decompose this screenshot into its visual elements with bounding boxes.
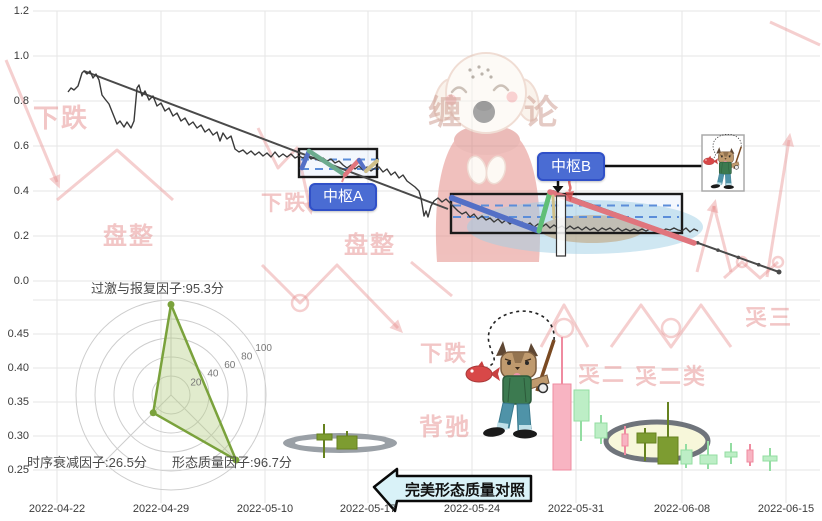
watermark-zigzag — [541, 305, 588, 347]
watermark-zigzag — [411, 262, 452, 296]
radar-tick-label: 80 — [241, 351, 253, 362]
y-axis-label: 0.25 — [0, 464, 29, 476]
chart-svg: 20406080100 — [0, 0, 822, 521]
pivot-a-label[interactable]: 中枢A — [309, 183, 377, 211]
trendline-marker — [777, 270, 782, 275]
chan-analysis-chart: 20406080100 — [0, 0, 822, 521]
watermark-text: 盘整 — [344, 225, 396, 260]
brand-char-right: 论 — [524, 85, 558, 134]
y-axis-label: 0.40 — [0, 362, 29, 374]
price-chart-layer — [68, 71, 782, 275]
trendline-marker — [737, 256, 741, 260]
watermark-text: 三买 — [743, 300, 791, 332]
candle-body — [763, 456, 777, 461]
y-axis-label: 0.6 — [0, 140, 29, 152]
y-axis-label: 1.2 — [0, 5, 29, 17]
radar-factor-label: 形态质量因子:96.7分 — [172, 452, 292, 471]
watermark-shapes-layer — [6, 22, 820, 347]
radar-tick-label: 60 — [224, 360, 236, 371]
fisherman-cat-illustration — [466, 311, 554, 438]
x-axis-label: 2022-04-22 — [29, 503, 85, 515]
x-axis-label: 2022-04-29 — [133, 503, 189, 515]
candle-body — [595, 423, 607, 438]
radar-vertex-dot — [150, 409, 157, 416]
trendline-marker — [757, 263, 761, 267]
radar-tick-label: 100 — [255, 343, 272, 354]
radar-tick-label: 20 — [190, 377, 202, 388]
pivot-b-label[interactable]: 中枢B — [537, 152, 605, 181]
x-axis-label: 2022-05-10 — [237, 503, 293, 515]
candle-body — [700, 455, 717, 464]
candle-body — [622, 434, 628, 446]
y-axis-label: 0.8 — [0, 95, 29, 107]
mini-picture-layer — [702, 134, 744, 191]
watermark-text: 盘整 — [103, 216, 155, 251]
x-axis-label: 2022-05-17 — [340, 503, 396, 515]
callout-text[interactable]: 完美形态质量对照 — [399, 479, 531, 500]
segment-endpoint-dot — [449, 195, 455, 201]
watermark-zigzag — [611, 305, 731, 347]
y-axis-label: 0.35 — [0, 396, 29, 408]
fishing-reel — [539, 384, 548, 393]
watermark-text: 下跌 — [33, 98, 89, 135]
y-axis-label: 1.0 — [0, 50, 29, 62]
watermark-zigzag — [262, 265, 398, 328]
candle-body — [658, 437, 678, 464]
arrowhead — [782, 133, 794, 147]
watermark-zigzag — [770, 22, 820, 45]
gray-ellipse-highlight — [606, 422, 708, 460]
candle-body — [681, 450, 692, 464]
watermark-text: 类二买 — [633, 359, 705, 391]
y-axis-label: 0.45 — [0, 328, 29, 340]
watermark-text: 背驰 — [419, 407, 471, 442]
radar-factor-label: 时序衰减因子:26.5分 — [27, 452, 147, 471]
candle-body — [553, 384, 571, 470]
chan-stroke-segment — [553, 196, 554, 218]
radar-tick-label: 40 — [207, 369, 219, 380]
x-axis-label: 2022-05-31 — [548, 503, 604, 515]
y-axis-label: 0.2 — [0, 230, 29, 242]
watermark-zigzag — [57, 150, 173, 200]
watermark-text: 下跌 — [420, 336, 468, 368]
y-axis-label: 0.4 — [0, 185, 29, 197]
y-axis-label: 0.0 — [0, 275, 29, 287]
candle-body — [637, 433, 656, 443]
trendline-marker — [716, 248, 720, 252]
radar-factor-label: 过激与报复因子:95.3分 — [91, 278, 224, 297]
candle-body — [317, 434, 332, 440]
x-axis-label: 2022-06-15 — [758, 503, 814, 515]
candle-body — [574, 390, 589, 421]
candle-body — [725, 452, 737, 457]
candle-body — [747, 450, 753, 462]
watermark-zigzag — [697, 206, 714, 272]
narrow-marker-rect — [557, 196, 566, 256]
red-fish — [466, 361, 500, 382]
watermark-zigzag — [714, 206, 731, 272]
brand-char-left: 缠 — [428, 85, 462, 134]
candle-body — [337, 436, 357, 449]
y-axis-label: 0.30 — [0, 430, 29, 442]
watermark-text: 二买 — [576, 357, 624, 389]
x-axis-label: 2022-05-24 — [444, 503, 500, 515]
watermark-text: 下跌 — [261, 187, 307, 217]
x-axis-label: 2022-06-08 — [654, 503, 710, 515]
radar-vertex-dot — [168, 301, 175, 308]
